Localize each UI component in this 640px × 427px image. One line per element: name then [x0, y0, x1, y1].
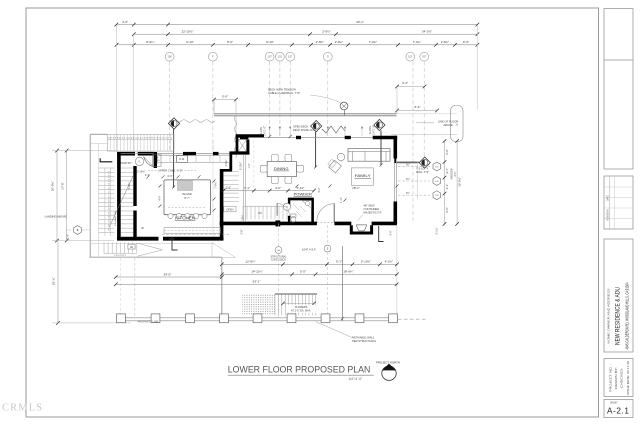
svg-text:3'-6¾": 3'-6¾" [225, 159, 228, 166]
svg-text:4'-0": 4'-0" [167, 174, 172, 178]
svg-text:6'-6": 6'-6" [445, 149, 449, 155]
svg-text:AT 2'-6" EA. MAX.: AT 2'-6" EA. MAX. [291, 309, 311, 312]
svg-text:4'-0": 4'-0" [275, 186, 281, 190]
svg-text:DINING: DINING [274, 166, 289, 171]
svg-text:1/4"=1'-0": 1/4"=1'-0" [349, 377, 363, 381]
svg-text:A-2.1: A-2.1 [607, 407, 630, 416]
svg-text:107: 107 [408, 55, 413, 59]
svg-text:2'-6": 2'-6" [145, 173, 150, 177]
svg-text:G: G [327, 55, 329, 59]
svg-text:107: 107 [422, 55, 427, 59]
svg-text:5'-1": 5'-1" [336, 260, 342, 264]
svg-text:18'-¾": 18'-¾" [52, 277, 56, 285]
svg-text:7'-10¾": 7'-10¾" [242, 215, 245, 223]
svg-text:OPEN DECK: OPEN DECK [293, 124, 309, 128]
svg-text:20'-8¾": 20'-8¾" [51, 181, 55, 191]
svg-text:7'-1": 7'-1" [244, 186, 250, 190]
svg-text:1047.4 S.F.: 1047.4 S.F. [302, 248, 316, 252]
svg-text:NEW RESIDENCE & ADU: NEW RESIDENCE & ADU [616, 287, 622, 345]
svg-text:107: 107 [267, 55, 272, 59]
svg-text:PANTRY: PANTRY [120, 161, 131, 165]
svg-text:63'-1": 63'-1" [253, 280, 261, 284]
svg-text:ISSUE DATE: 02.17.25: ISSUE DATE: 02.17.25 [627, 360, 630, 395]
svg-text:5'-5": 5'-5" [300, 270, 306, 274]
svg-text:CRMLS: CRMLS [2, 403, 43, 414]
svg-text:DN HAND RAIL: DN HAND RAIL [114, 209, 117, 225]
svg-text:3'-1": 3'-1" [445, 168, 449, 174]
svg-text:103.0: 103.0 [154, 160, 160, 162]
svg-text:4'-2¾": 4'-2¾" [385, 260, 393, 264]
svg-text:9'-0¾": 9'-0¾" [128, 182, 131, 189]
svg-text:12'-6¾": 12'-6¾" [245, 260, 255, 264]
svg-text:ABOVE: ABOVE [443, 123, 452, 127]
svg-text:3'-0": 3'-0" [389, 230, 393, 235]
svg-text:18'-6¾": 18'-6¾" [343, 270, 353, 274]
svg-text:D.W.: D.W. [179, 158, 185, 161]
svg-text:5'-10": 5'-10" [266, 40, 274, 44]
svg-text:DATE: DATE [606, 194, 609, 201]
svg-text:5'-10¾": 5'-10¾" [361, 260, 371, 264]
svg-text:106: 106 [167, 55, 172, 59]
svg-text:3'-1": 3'-1" [445, 184, 449, 190]
svg-text:2'-0": 2'-0" [226, 186, 231, 190]
svg-text:7'-9¾": 7'-9¾" [214, 181, 218, 188]
svg-text:34'-2½": 34'-2½" [422, 30, 432, 34]
svg-text:18'-1": 18'-1" [352, 186, 360, 190]
svg-text:F.S.: F.S. [155, 157, 159, 159]
svg-text:4'-4": 4'-4" [402, 81, 408, 85]
svg-text:4'-11": 4'-11" [340, 197, 343, 203]
svg-text:2'-8¾": 2'-8¾" [441, 40, 449, 44]
svg-text:SHEET: SHEET [610, 403, 618, 405]
svg-text:1'-2": 1'-2" [248, 163, 251, 168]
svg-text:2'-6": 2'-6" [241, 229, 244, 234]
svg-text:5'-10¾": 5'-10¾" [240, 162, 243, 170]
svg-text:43'-1": 43'-1" [356, 20, 364, 24]
svg-text:2'-8¼": 2'-8¼" [316, 40, 324, 44]
svg-text:17'-8": 17'-8" [61, 182, 65, 190]
svg-text:ISLAND: ISLAND [182, 192, 192, 196]
svg-text:LOWER FLOOR PROPOSED PLAN: LOWER FLOOR PROPOSED PLAN [228, 365, 371, 375]
svg-text:WALL TYP.: WALL TYP. [416, 170, 429, 174]
svg-text:FAMILY: FAMILY [355, 173, 371, 178]
svg-text:POWDER: POWDER [294, 191, 312, 196]
svg-text:HOME OWNER AND ADDRESS: HOME OWNER AND ADDRESS [608, 288, 611, 343]
svg-text:MAJESTIC F.P.: MAJESTIC F.P. [364, 210, 383, 214]
svg-text:8'-0¾": 8'-0¾" [146, 40, 154, 44]
svg-text:CHECKED:: CHECKED: [621, 368, 624, 388]
svg-text:8'-7": 8'-7" [184, 196, 189, 200]
svg-text:KITCHEN: KITCHEN [175, 216, 195, 221]
svg-text:K: K [139, 160, 141, 164]
svg-text:5'-0": 5'-0" [222, 94, 228, 98]
svg-text:3'-0": 3'-0" [454, 171, 457, 176]
svg-text:6'-4": 6'-4" [415, 105, 421, 109]
svg-text:CONTAINED: CONTAINED [364, 207, 380, 211]
svg-text:7'-2-1/2" X: 7'-2-1/2" X [416, 167, 428, 171]
svg-text:2'-10¾": 2'-10¾" [136, 169, 145, 173]
svg-text:48" SELF: 48" SELF [364, 203, 376, 207]
svg-text:6'-6": 6'-6" [445, 207, 449, 213]
svg-text:22'-10½": 22'-10½" [182, 30, 194, 34]
svg-text:34'-0": 34'-0" [164, 272, 172, 276]
svg-text:7'-0¾": 7'-0¾" [413, 40, 421, 44]
svg-text:7'-0¾": 7'-0¾" [369, 40, 377, 44]
svg-text:101: 101 [278, 55, 283, 59]
svg-text:UP: UP [141, 227, 145, 230]
svg-text:CABLE GUARDRAIL, TYP.: CABLE GUARDRAIL, TYP. [268, 91, 301, 95]
svg-text:6'-6": 6'-6" [463, 40, 469, 44]
svg-text:7 6 5 4 3 2 1: 7 6 5 4 3 2 1 [114, 255, 127, 257]
svg-text:LANDING ABOVE: LANDING ABOVE [45, 214, 67, 218]
svg-text:5'-2": 5'-2" [318, 187, 321, 192]
svg-text:4845 CALDERON RD, WOODLAND HIL: 4845 CALDERON RD, WOODLAND HILLS, CA 913… [625, 282, 630, 349]
svg-text:2'-8¼": 2'-8¼" [335, 40, 343, 44]
svg-text:5'-0": 5'-0" [227, 40, 233, 44]
svg-text:107: 107 [288, 55, 293, 59]
svg-text:16'-0¾": 16'-0¾" [458, 177, 462, 186]
svg-text:RETAINING WALL: RETAINING WALL [352, 336, 375, 340]
svg-text:DRAWN BY:: DRAWN BY: [615, 367, 618, 389]
svg-text:REVISION: REVISION [606, 209, 609, 221]
svg-text:DN: DN [258, 212, 262, 215]
svg-text:PER STRUCTURAL: PER STRUCTURAL [352, 339, 377, 343]
svg-text:25 24 23 22 21 20 19 18 17 16: 25 24 23 22 21 20 19 18 17 16 15 14 13 1… [109, 171, 111, 231]
svg-text:DN: DN [130, 247, 134, 249]
svg-text:DECK WITH TENSION: DECK WITH TENSION [268, 87, 296, 91]
svg-text:18 17 16 15 14 13 12 11 10 9 8: 18 17 16 15 14 13 12 11 10 9 8 7 6 5 4 3… [108, 138, 173, 140]
svg-text:5'-10": 5'-10" [297, 186, 305, 190]
svg-text:14'-11¾": 14'-11¾" [251, 270, 263, 274]
svg-text:PROJECT NORTH: PROJECT NORTH [376, 360, 400, 364]
svg-text:2'-0½": 2'-0½" [322, 30, 330, 34]
svg-text:5'-1¾": 5'-1¾" [436, 227, 439, 234]
svg-text:6'-10": 6'-10" [186, 40, 194, 44]
svg-text:2'-8": 2'-8" [67, 234, 70, 239]
svg-text:PROJECT NO. :: PROJECT NO. : [610, 364, 613, 392]
svg-text:UPPER CABS.-6'-6": UPPER CABS.-6'-6" [158, 168, 182, 172]
svg-text:4'-0": 4'-0" [122, 20, 128, 24]
svg-text:4'-0": 4'-0" [158, 195, 162, 200]
svg-text:LINE OF FLOOR: LINE OF FLOOR [438, 119, 459, 123]
svg-text:PROPERTY LINE: PROPERTY LINE [138, 320, 159, 324]
svg-text:T.O.: T.O. [155, 163, 159, 165]
svg-text:OPEN: OPEN [226, 208, 233, 211]
